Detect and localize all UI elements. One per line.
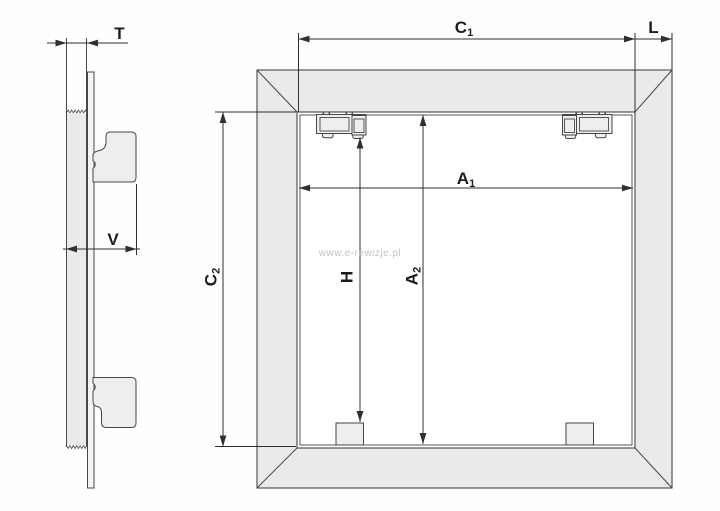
- access-panel-dimension-diagram: T V: [0, 0, 720, 511]
- latch-foot-right: [353, 135, 363, 139]
- dimension-T: T: [47, 24, 128, 46]
- wall-fill: [67, 114, 86, 445]
- label-C1: C1: [455, 18, 473, 39]
- wall-section: [67, 38, 87, 449]
- hinge-block-bottom-left: [336, 423, 364, 445]
- diagram-canvas: T V: [0, 0, 720, 511]
- wall-break-line-top: [67, 110, 87, 113]
- dim-c1-arrow-left: [299, 36, 310, 43]
- latch-tick: [329, 113, 331, 115]
- latch-foot-right: [596, 134, 607, 138]
- dim-t-arrow-right: [87, 40, 98, 47]
- watermark-text: www.e-rewizje.pl: [318, 248, 401, 259]
- latch-tick: [323, 113, 325, 115]
- label-V: V: [107, 230, 119, 249]
- side-view: T V: [47, 24, 140, 488]
- hinge-block-bottom-right: [566, 423, 594, 445]
- dim-l-arrow-right: [661, 36, 672, 43]
- dim-c2-arrow-bottom: [220, 436, 227, 447]
- latch-tick: [581, 113, 583, 115]
- latch-tick: [604, 113, 606, 115]
- frame-profile-bottom: [93, 378, 136, 428]
- frame-profile-top: [93, 132, 136, 182]
- latch-tick: [575, 113, 577, 115]
- front-view: C1 L C2 A1 A2: [202, 18, 673, 488]
- latch-tick: [598, 113, 600, 115]
- latch-foot-left: [323, 134, 334, 138]
- dim-v-arrow-right: [126, 246, 137, 253]
- door-panel-side: [88, 72, 95, 488]
- label-C2: C2: [202, 268, 223, 286]
- dim-c2-arrow-top: [220, 112, 227, 123]
- latch-tick: [346, 113, 348, 115]
- dim-c1-arrow-right: [624, 36, 635, 43]
- dim-t-arrow-left: [56, 40, 67, 47]
- wall-break-line-bottom: [67, 446, 87, 449]
- label-T: T: [114, 24, 125, 43]
- latch-foot-left: [565, 135, 575, 139]
- label-H: H: [338, 271, 357, 283]
- latch-tick: [352, 113, 354, 115]
- label-L: L: [648, 18, 658, 37]
